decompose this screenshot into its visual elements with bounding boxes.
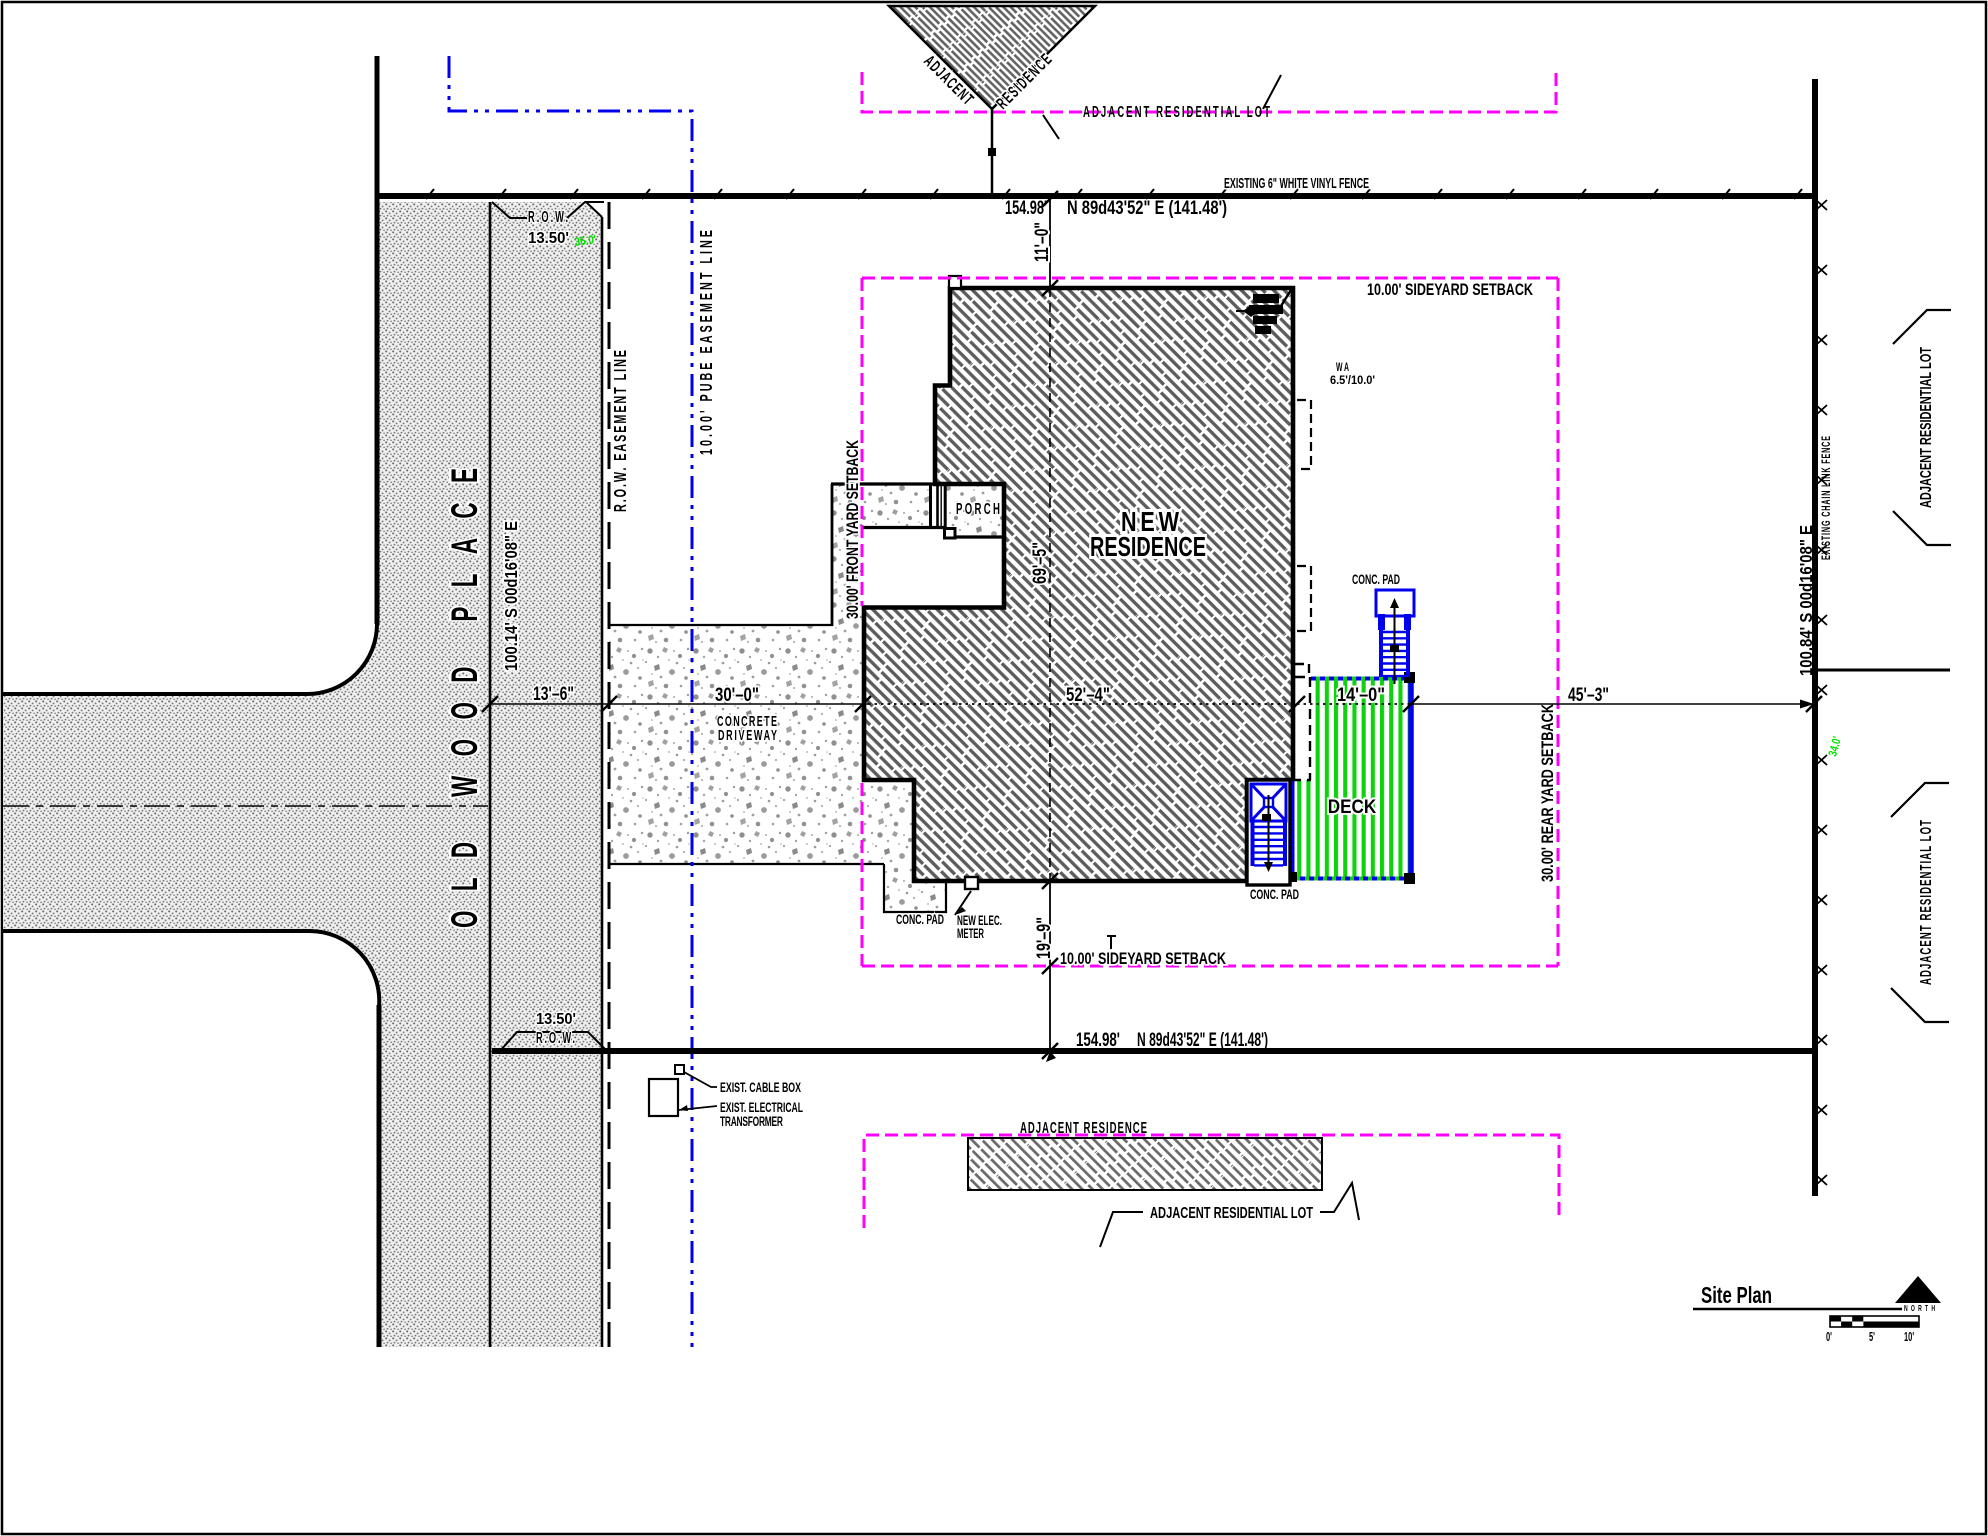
svg-text:154.98': 154.98' — [1005, 197, 1047, 219]
svg-text:TRANSFORMER: TRANSFORMER — [720, 1115, 783, 1130]
svg-text:10.00' SIDEYARD SETBACK: 10.00' SIDEYARD SETBACK — [1367, 279, 1533, 298]
svg-text:100.84' S 00d16'08" E: 100.84' S 00d16'08" E — [1797, 525, 1816, 676]
svg-text:N 89d43'52" E (141.48'): N 89d43'52" E (141.48') — [1067, 197, 1227, 219]
svg-text:10': 10' — [1904, 1331, 1914, 1344]
svg-text:ADJACENT RESIDENTIAL LOT: ADJACENT RESIDENTIAL LOT — [1916, 820, 1934, 985]
svg-text:6.5'/10.0': 6.5'/10.0' — [1330, 374, 1375, 387]
svg-text:ADJACENT RESIDENTIAL LOT: ADJACENT RESIDENTIAL LOT — [1916, 347, 1934, 508]
svg-text:CONC. PAD: CONC. PAD — [1250, 888, 1299, 903]
svg-text:52'–4": 52'–4" — [1066, 684, 1110, 706]
svg-text:EXISTING CHAIN LINK FENCE: EXISTING CHAIN LINK FENCE — [1820, 436, 1833, 560]
svg-text:0': 0' — [1826, 1331, 1832, 1344]
svg-text:Site Plan: Site Plan — [1701, 1282, 1772, 1309]
svg-text:30.00' FRONT YARD SETBACK: 30.00' FRONT YARD SETBACK — [843, 440, 861, 619]
svg-text:METER: METER — [957, 927, 984, 942]
svg-text:14'–0": 14'–0" — [1337, 684, 1385, 706]
svg-text:R.O.W.: R.O.W. — [536, 1028, 575, 1046]
svg-text:13.50': 13.50' — [536, 1009, 576, 1027]
svg-text:19'–9": 19'–9" — [1033, 917, 1055, 959]
svg-text:69'–5": 69'–5" — [1029, 542, 1051, 584]
svg-text:CONC. PAD: CONC. PAD — [896, 913, 944, 928]
svg-text:11'–0": 11'–0" — [1031, 222, 1053, 262]
svg-text:30'–0": 30'–0" — [715, 684, 759, 706]
svg-text:ADJACENT RESIDENTIAL LOT: ADJACENT RESIDENTIAL LOT — [1150, 1203, 1313, 1221]
svg-text:CONC. PAD: CONC. PAD — [1352, 573, 1400, 588]
svg-text:ADJACENT RESIDENTIAL LOT: ADJACENT RESIDENTIAL LOT — [1083, 102, 1270, 120]
svg-text:30.00' REAR YARD SETBACK: 30.00' REAR YARD SETBACK — [1538, 704, 1556, 882]
svg-text:RESIDENCE: RESIDENCE — [1090, 531, 1206, 562]
svg-text:10.00' PUBE EASEMENT LINE: 10.00' PUBE EASEMENT LINE — [697, 230, 716, 455]
svg-text:DRIVEWAY: DRIVEWAY — [718, 727, 778, 744]
svg-text:13.50': 13.50' — [528, 228, 569, 246]
svg-text:100.14' S 00d16'08" E: 100.14' S 00d16'08" E — [502, 521, 521, 671]
svg-text:EXIST. CABLE BOX: EXIST. CABLE BOX — [720, 1081, 801, 1096]
svg-text:N 89d43'52" E (141.48'): N 89d43'52" E (141.48') — [1137, 1029, 1268, 1051]
svg-text:13'–6": 13'–6" — [533, 683, 574, 705]
svg-text:5': 5' — [1869, 1331, 1875, 1344]
svg-text:R.O.W.: R.O.W. — [528, 207, 568, 225]
svg-text:EXIST. ELECTRICAL: EXIST. ELECTRICAL — [720, 1101, 803, 1116]
svg-text:EXISTING 6" WHITE VINYL FENCE: EXISTING 6" WHITE VINYL FENCE — [1224, 175, 1369, 192]
svg-text:10.00' SIDEYARD SETBACK: 10.00' SIDEYARD SETBACK — [1060, 948, 1226, 967]
svg-text:45'–3": 45'–3" — [1568, 684, 1609, 706]
svg-text:154.98': 154.98' — [1076, 1029, 1120, 1051]
svg-text:DECK: DECK — [1328, 796, 1376, 817]
